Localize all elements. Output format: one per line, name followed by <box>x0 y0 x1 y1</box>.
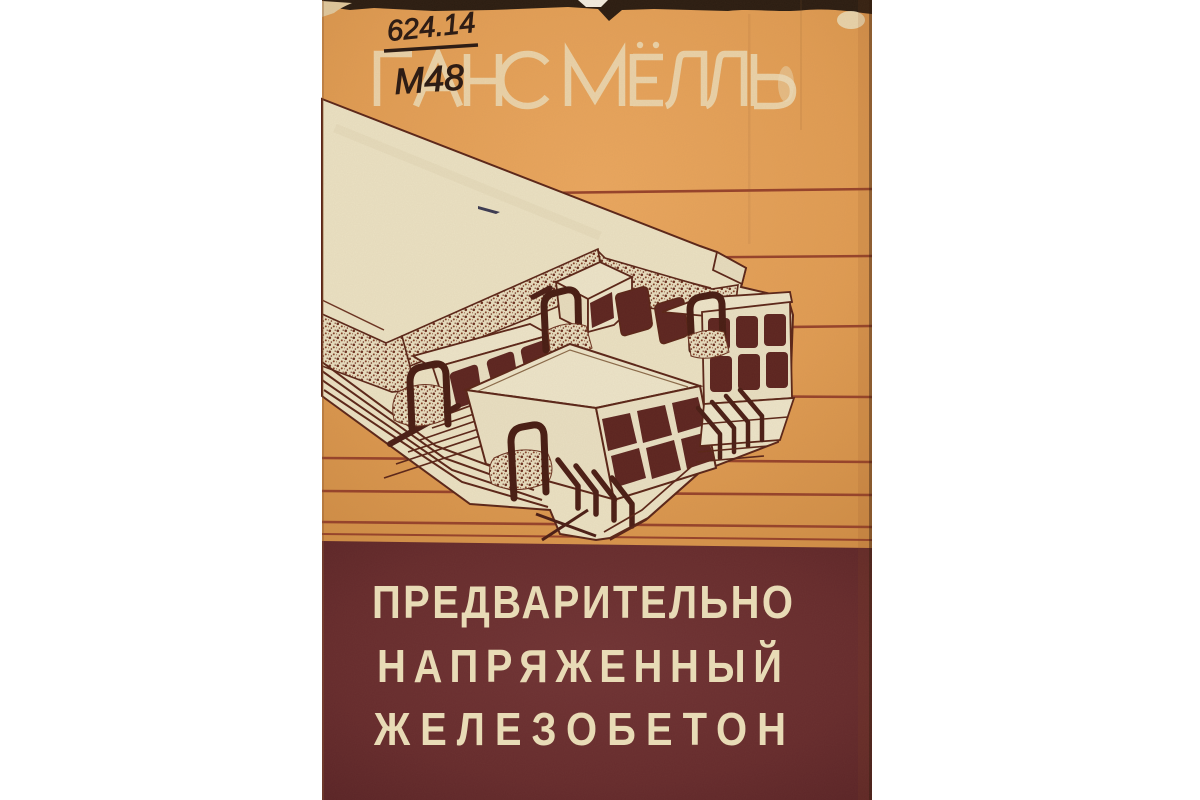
svg-text:ЖЕЛЕЗОБЕТОН: ЖЕЛЕЗОБЕТОН <box>373 704 786 755</box>
svg-text:M48: M48 <box>393 56 466 102</box>
svg-text:НАПРЯЖЕННЫЙ: НАПРЯЖЕННЫЙ <box>377 640 782 692</box>
svg-text:ПРЕДВАРИТЕЛЬНО: ПРЕДВАРИТЕЛЬНО <box>372 577 793 628</box>
